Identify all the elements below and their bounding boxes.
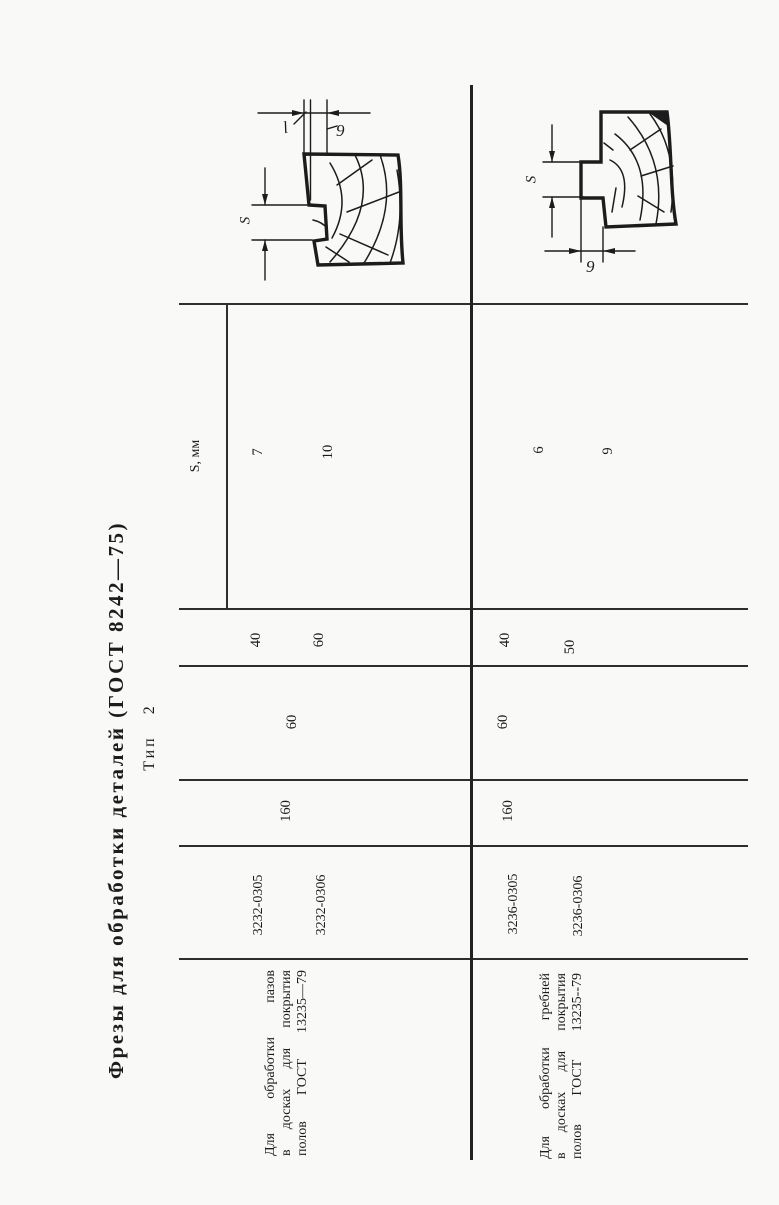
s-value: 10 xyxy=(318,412,338,492)
designation: 3232-0305 xyxy=(249,850,269,960)
bore-value: 60 xyxy=(493,682,513,762)
profile-sketches xyxy=(0,0,779,400)
type-label: Тип 2 xyxy=(140,677,160,797)
width-value: 40 xyxy=(495,600,515,680)
top-dimensions xyxy=(258,100,370,200)
arrowhead xyxy=(327,110,339,116)
purpose-line: в досках для покрытия xyxy=(279,970,295,1156)
dim-label-b: 9 xyxy=(336,122,345,139)
s-dimension xyxy=(543,125,584,237)
table-line-diam-desig xyxy=(179,845,748,847)
diameter-value: 160 xyxy=(498,771,518,851)
dim-label-s: S xyxy=(239,201,254,241)
purpose-text: Для обработки пазов в досках для покрыти… xyxy=(263,970,311,1156)
arrowhead xyxy=(549,151,555,162)
s-value: 6 xyxy=(529,410,549,490)
designation: 3236-0305 xyxy=(504,849,524,959)
table-line-d-diam xyxy=(179,779,748,781)
dim-label-s: S xyxy=(525,160,540,200)
width-value: 40 xyxy=(246,600,266,680)
purpose-line: полов ГОСТ 13235—79 xyxy=(295,970,311,1156)
diameter-value: 160 xyxy=(276,771,296,851)
designation: 3236-0306 xyxy=(569,851,589,961)
purpose-line: Для обработки пазов xyxy=(263,970,279,1156)
dim-label-b: 9 xyxy=(586,258,595,275)
groove-board-outline xyxy=(252,100,403,280)
b-dimension xyxy=(545,200,635,262)
scanned-gost-page: Фрезы для обработки деталей (ГОСТ 8242—7… xyxy=(0,0,779,1205)
wood-grain xyxy=(604,114,673,224)
width-value: 60 xyxy=(309,600,329,680)
arrowhead xyxy=(603,248,615,254)
arrowhead xyxy=(569,248,581,254)
bore-value: 60 xyxy=(282,682,302,762)
s-value: 9 xyxy=(598,411,618,491)
arrowhead xyxy=(262,240,268,251)
s-column-header: S, мм xyxy=(186,396,206,516)
purpose-text: Для обработки гребней в досках для покры… xyxy=(538,973,586,1159)
s-value: 7 xyxy=(248,412,268,492)
arrowhead xyxy=(549,197,555,208)
purpose-line: в досках для покрытия xyxy=(554,973,570,1159)
tongue-board-outline xyxy=(543,112,676,262)
page-title: Фрезы для обработки деталей (ГОСТ 8242—7… xyxy=(102,400,130,1200)
purpose-line: Для обработки гребней xyxy=(538,973,554,1159)
width-value: 50 xyxy=(560,607,580,687)
arrowhead xyxy=(262,194,268,205)
s-dimension xyxy=(252,168,312,280)
designation: 3232-0306 xyxy=(312,850,332,960)
purpose-line: полов ГОСТ 13235--79 xyxy=(570,973,586,1159)
